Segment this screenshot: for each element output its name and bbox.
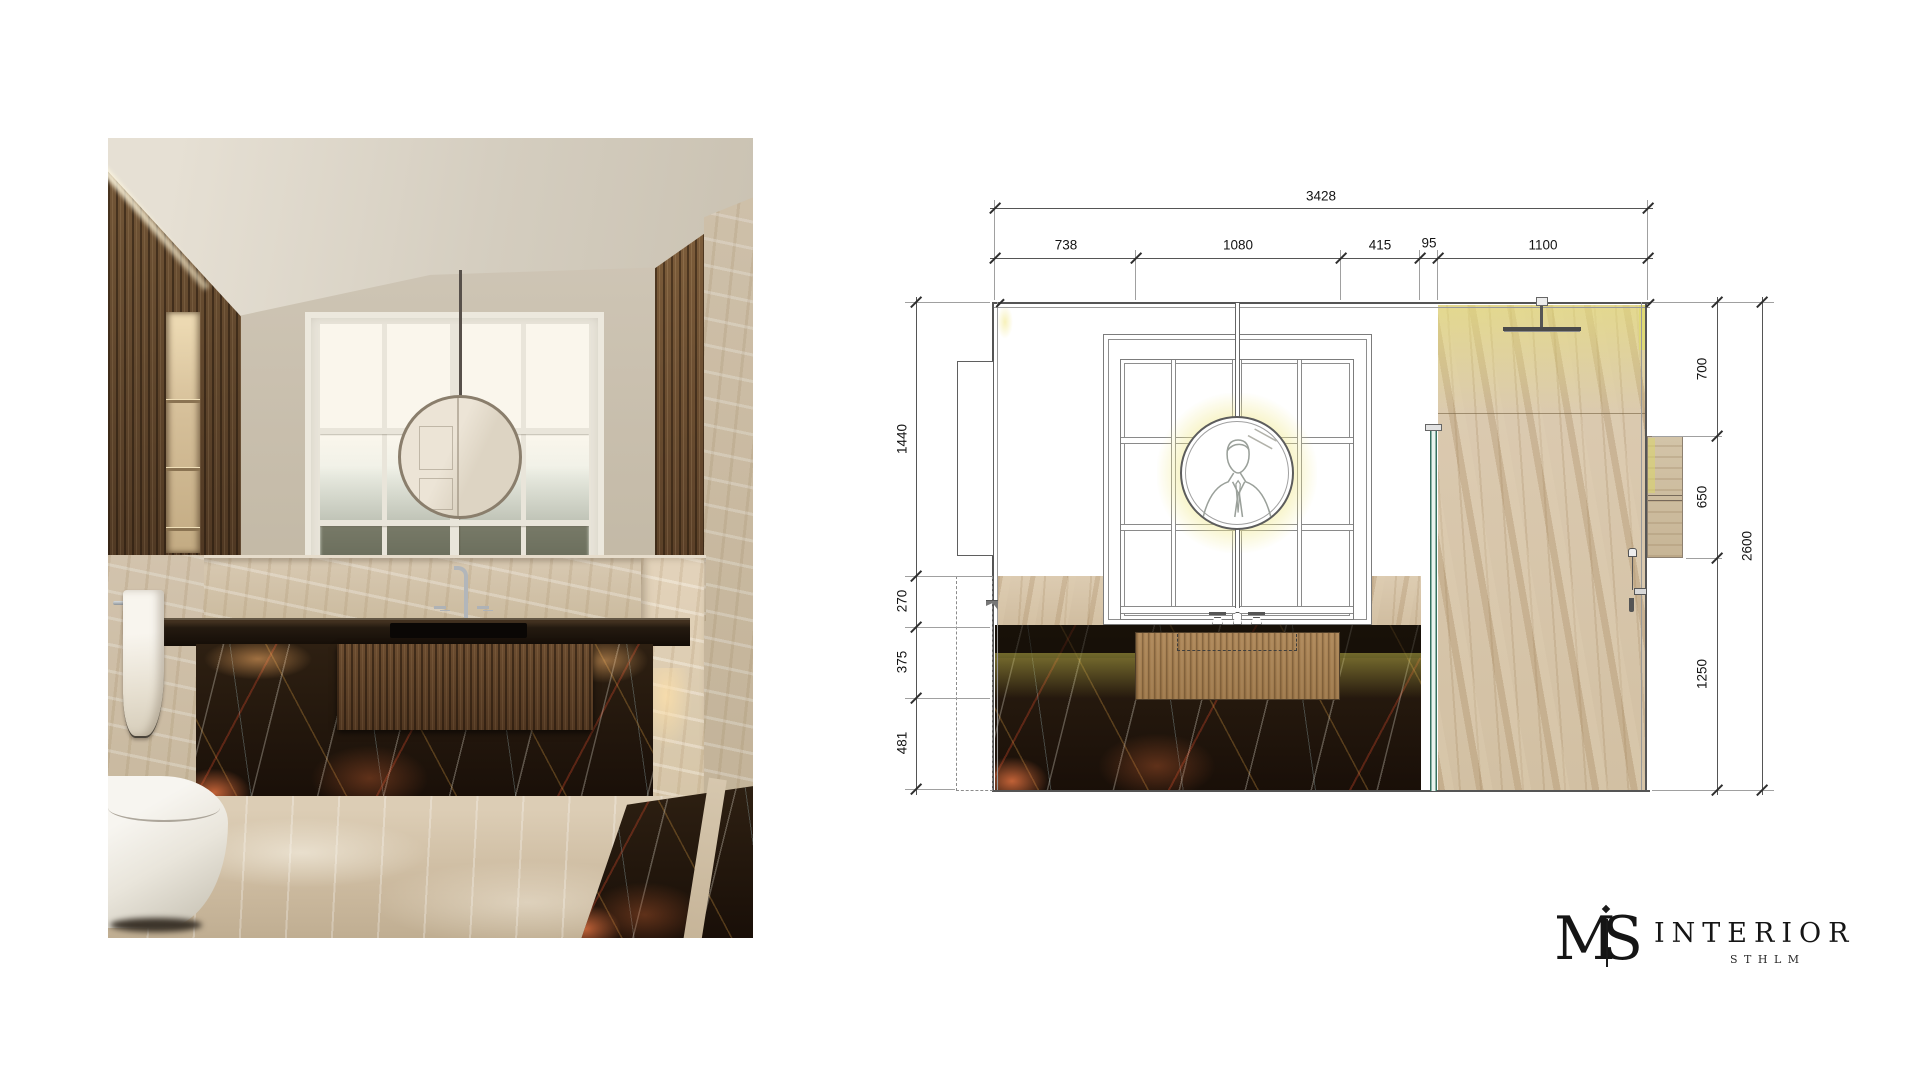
drawing-faucet-handle [1248,612,1265,615]
shelf [166,468,200,471]
toilet-seat-line [108,794,220,822]
drawing-side-cabinet-glow [1648,438,1655,493]
extension-line [994,200,995,300]
faucet-handle [477,606,489,609]
drawing-wainscot-right [1372,576,1421,625]
shelf [166,528,200,531]
dim-segment: 650 [1695,486,1710,509]
shower-head-mount-icon [1536,297,1548,306]
logo-monogram: M S [1550,895,1650,985]
logo-monogram-stroke [1606,919,1608,967]
undercounter-glow [204,644,324,694]
right-marble-wall [704,138,753,798]
mirror-rod [459,270,462,398]
dim-segment: 1250 [1695,659,1710,689]
dim-line-right-outer [1762,297,1763,795]
extension-line [1652,302,1774,303]
mirror-reflection-line [457,398,459,519]
towel [123,590,164,738]
mirror-reflection-panel [419,426,453,470]
drawing-wainscot-left [998,576,1103,625]
left-cabinet-section [957,361,994,556]
faucet [454,566,468,618]
dim-segment: 95 [1421,236,1436,251]
extension-line [1652,790,1774,791]
dim-line-top-segments [990,258,1653,259]
drawing-mirror-stem-lower [1235,528,1240,608]
faucet-handle [434,606,446,609]
extension-line [905,302,990,303]
extension-line [905,576,990,577]
dim-segment: 1100 [1528,238,1557,253]
drawing-sink-dashed [1177,634,1297,651]
dim-segment: 738 [1055,238,1078,253]
logo-word: INTERIOR [1654,918,1855,949]
shower-head-stem [1540,306,1543,328]
wall-top-line-2 [993,307,1650,308]
drawing-side-cabinet-shelf [1648,495,1682,501]
hand-shower-hose [1632,556,1634,590]
extension-line [1647,200,1648,300]
extension-line [1652,436,1722,437]
dim-total-width: 3428 [1306,189,1336,204]
drawing-mirror-stem [1235,303,1240,417]
logo-monogram-s: S [1602,909,1643,969]
drawing-mirror [1180,416,1294,530]
mirror-person-sketch [1182,418,1292,528]
dim-line-right-inner [1717,297,1718,795]
dim-segment: 700 [1695,358,1710,381]
dim-segment: 1080 [1223,238,1253,253]
render-photo [108,138,753,938]
dim-line-left [916,297,917,795]
sink [390,623,527,638]
wall-top-line [993,302,1650,304]
drawing-faucet-handle [1209,612,1226,615]
shelf-niche [166,312,200,553]
dim-segment: 270 [895,590,910,613]
shower-head-icon [1503,327,1581,331]
presentation-sheet: 3428 738 1080 415 95 1100 1440 270 375 4… [0,0,1920,1080]
mirror-reflection-panel [419,478,453,510]
wall-left-edge-2 [997,302,998,792]
dim-total-height: 2600 [1740,531,1755,561]
toilet [108,776,232,938]
dim-segment: 375 [895,651,910,674]
shower-glass [1430,430,1437,791]
extension-line [905,627,990,628]
wall-right-edge [1645,302,1647,792]
floor-line [993,790,1650,792]
logo-city: STHLM [1730,953,1806,966]
window-muntin-h [320,520,589,526]
shelf [166,400,200,403]
round-mirror [398,395,522,519]
extension-line [905,698,990,699]
dim-segment: 1440 [895,424,910,454]
cove-glow [997,305,1013,339]
toilet-shadow [110,918,202,932]
shower-glass-bracket [1425,424,1442,431]
dim-segment: 481 [895,732,910,755]
wall-right-edge-2 [1641,302,1642,792]
dim-line-total-width [990,208,1653,209]
vanity-drawer [337,644,593,730]
hand-shower-handle [1629,598,1634,612]
hand-shower-bracket [1634,588,1647,595]
dim-segment: 415 [1369,238,1392,253]
brand-logo: M S INTERIOR STHLM [1550,895,1830,985]
toilet-dashed-outline [956,576,993,791]
